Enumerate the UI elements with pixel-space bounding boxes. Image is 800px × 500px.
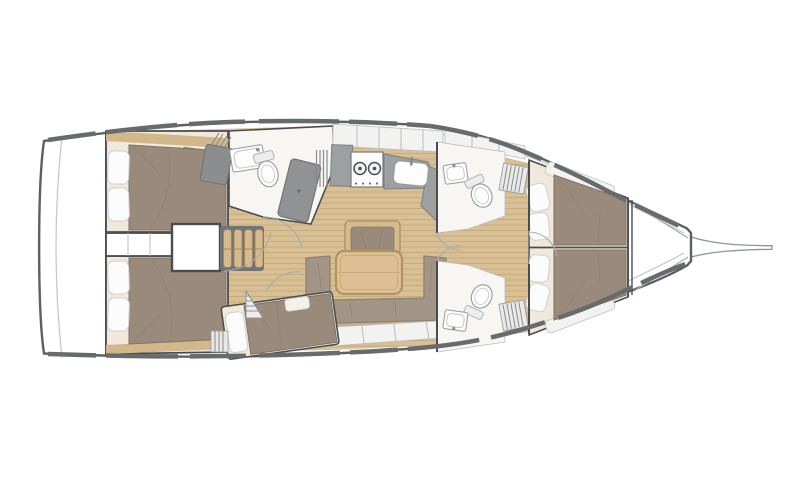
pillow (107, 151, 129, 185)
washbasin (443, 162, 468, 184)
floor-plan-canvas (0, 0, 800, 500)
pillow (528, 254, 550, 283)
bowsprit (691, 237, 772, 257)
step-tread (255, 230, 263, 268)
yacht-floor-plan (0, 0, 800, 500)
pillow (107, 298, 129, 332)
forward-cabin (525, 160, 628, 335)
counter-left (330, 145, 352, 187)
companionway-steps (220, 226, 264, 271)
shower-drain (297, 189, 300, 192)
hatched-locker (211, 331, 228, 352)
corridor-lockers (106, 233, 172, 256)
bench-seat (345, 221, 400, 254)
dining-table (336, 251, 402, 294)
pillow (528, 212, 550, 241)
pillow (107, 188, 129, 222)
shower-stall (200, 144, 233, 185)
step-tread (224, 230, 232, 268)
washbasin (443, 310, 468, 332)
stove (351, 152, 383, 187)
louvered-locker (499, 300, 528, 331)
engine-compartment (172, 224, 220, 271)
step-tread (234, 230, 242, 268)
pillow (107, 261, 129, 295)
louvered-locker (499, 163, 528, 194)
